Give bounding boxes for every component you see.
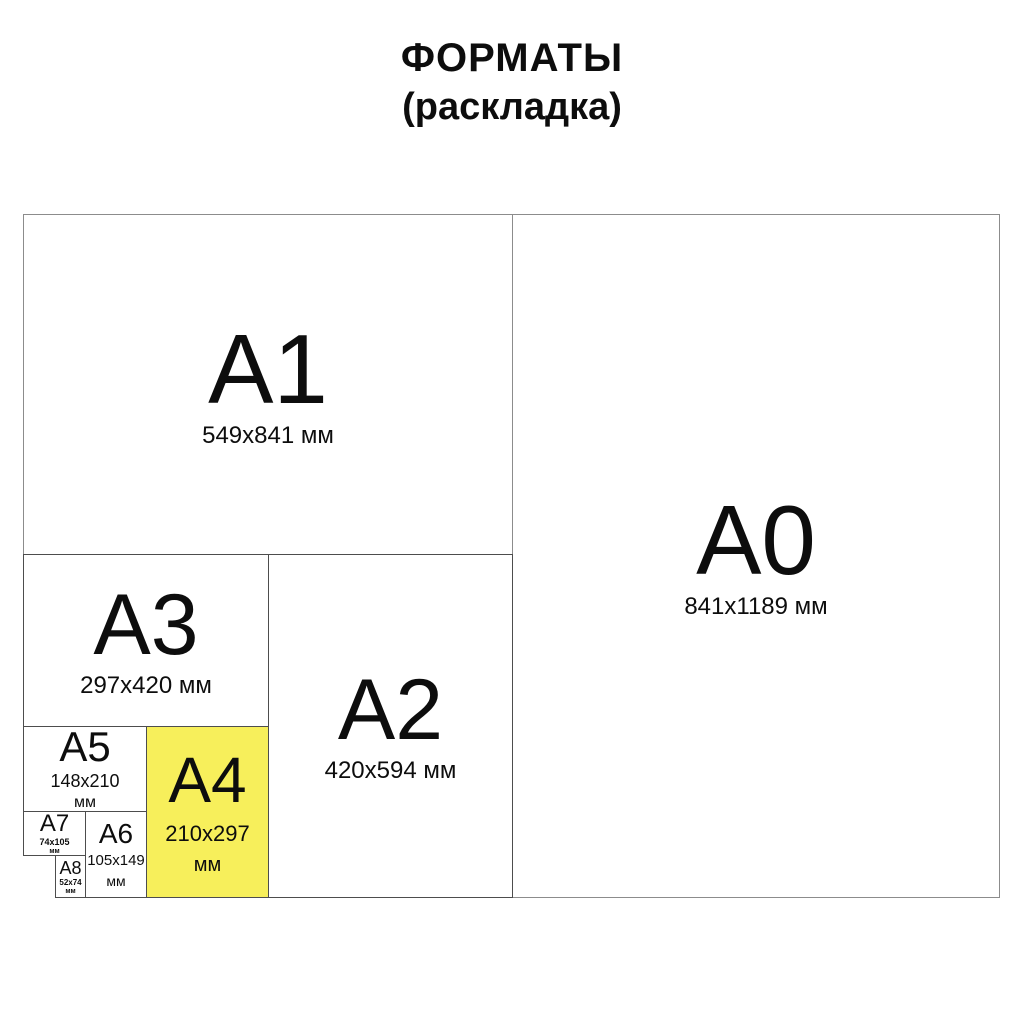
format-dims-a6: 105x149 [87, 852, 145, 869]
format-box-a4: A4 210x297 мм [146, 726, 269, 898]
format-box-a6: A6 105x149 мм [85, 811, 147, 898]
format-dims-a7: 74x105 [39, 837, 69, 847]
format-dims-a2: 420x594 мм [325, 757, 457, 785]
format-unit-a4: мм [194, 854, 222, 877]
format-box-a7: A7 74x105 мм [23, 811, 86, 856]
format-unit-a7: мм [49, 848, 59, 855]
format-dims-a3: 297x420 мм [80, 672, 212, 700]
format-unit-a5: мм [74, 794, 96, 812]
format-label-a4: A4 [168, 748, 246, 812]
format-unit-a6: мм [106, 873, 125, 889]
format-label-a0: A0 [696, 491, 816, 589]
format-box-a2: A2 420x594 мм [268, 554, 513, 898]
format-dims-a5: 148x210 [50, 771, 119, 792]
formats-layout-diagram: A1 549x841 мм A0 841x1189 мм A3 297x420 … [0, 0, 1024, 1024]
format-label-a2: A2 [338, 667, 443, 753]
paper-formats-infographic: ФОРМАТЫ (раскладка) A1 549x841 мм A0 841… [0, 0, 1024, 1024]
format-label-a8: A8 [59, 859, 81, 877]
format-dims-a4: 210x297 [165, 821, 249, 847]
format-label-a1: A1 [208, 320, 328, 418]
format-unit-a8: мм [65, 888, 75, 895]
format-box-a8: A8 52x74 мм [55, 855, 86, 898]
format-box-a0: A0 841x1189 мм [512, 214, 1000, 898]
format-label-a7: A7 [40, 812, 69, 836]
format-label-a3: A3 [93, 582, 198, 668]
format-dims-a1: 549x841 мм [202, 422, 334, 450]
format-box-a1: A1 549x841 мм [23, 214, 513, 555]
format-label-a6: A6 [99, 820, 133, 848]
format-label-a5: A5 [59, 726, 110, 768]
format-dims-a8: 52x74 [59, 878, 81, 887]
format-dims-a0: 841x1189 мм [684, 593, 827, 621]
format-box-a3: A3 297x420 мм [23, 554, 269, 727]
format-box-a5: A5 148x210 мм [23, 726, 147, 812]
